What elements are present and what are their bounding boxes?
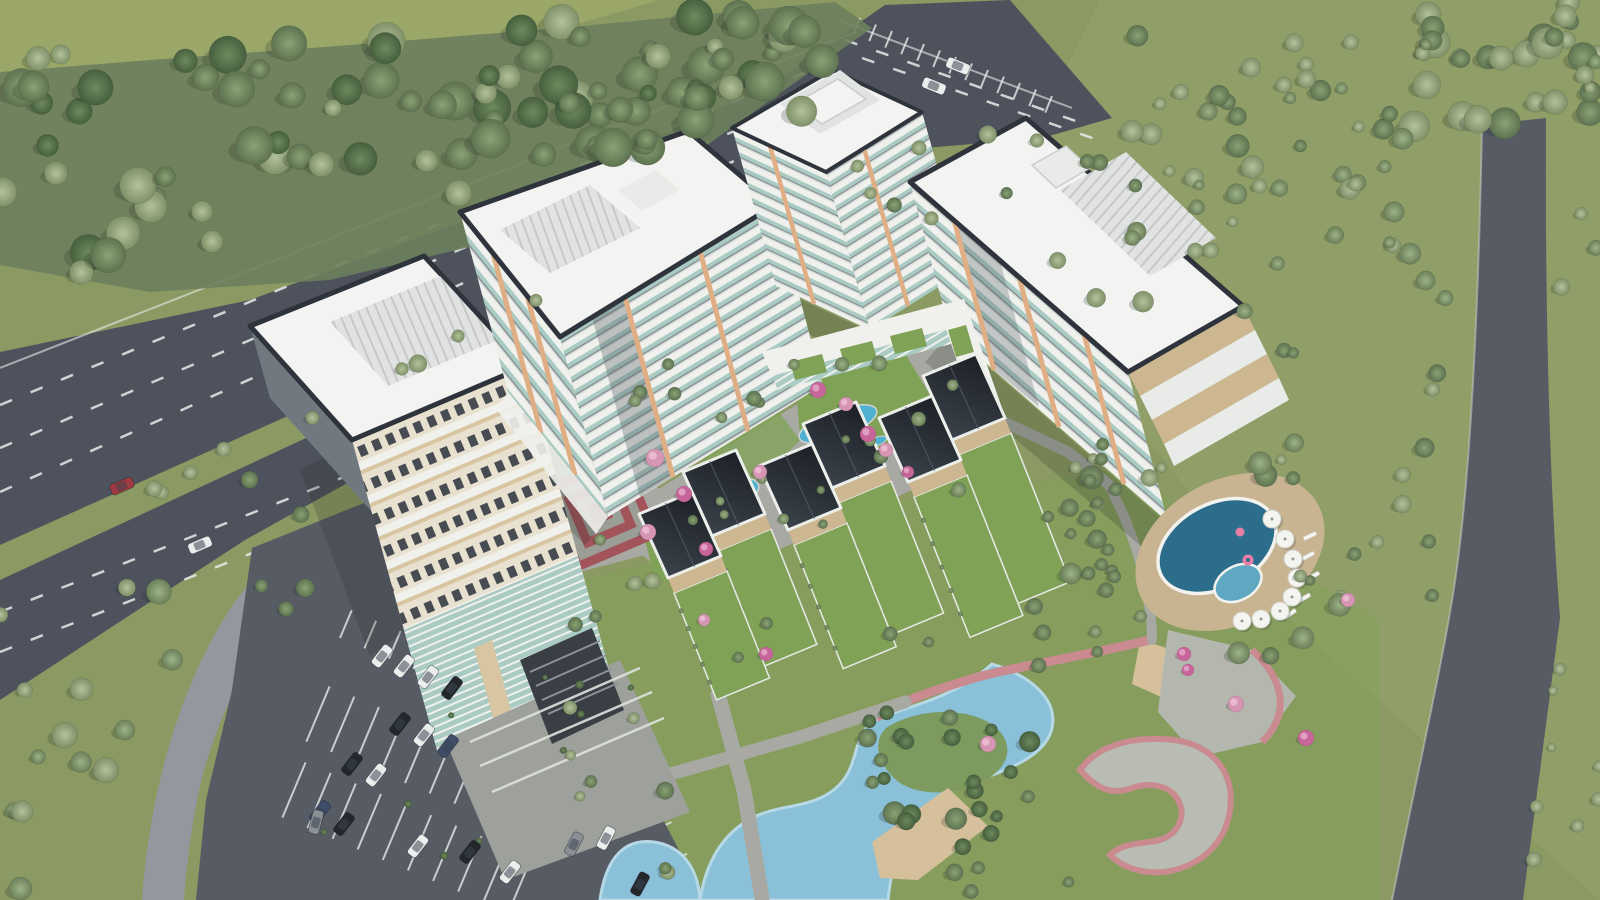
aerial-render-scene	[0, 0, 1600, 900]
flamingo-float	[1236, 528, 1245, 537]
aerial-render-stage	[0, 0, 1600, 900]
